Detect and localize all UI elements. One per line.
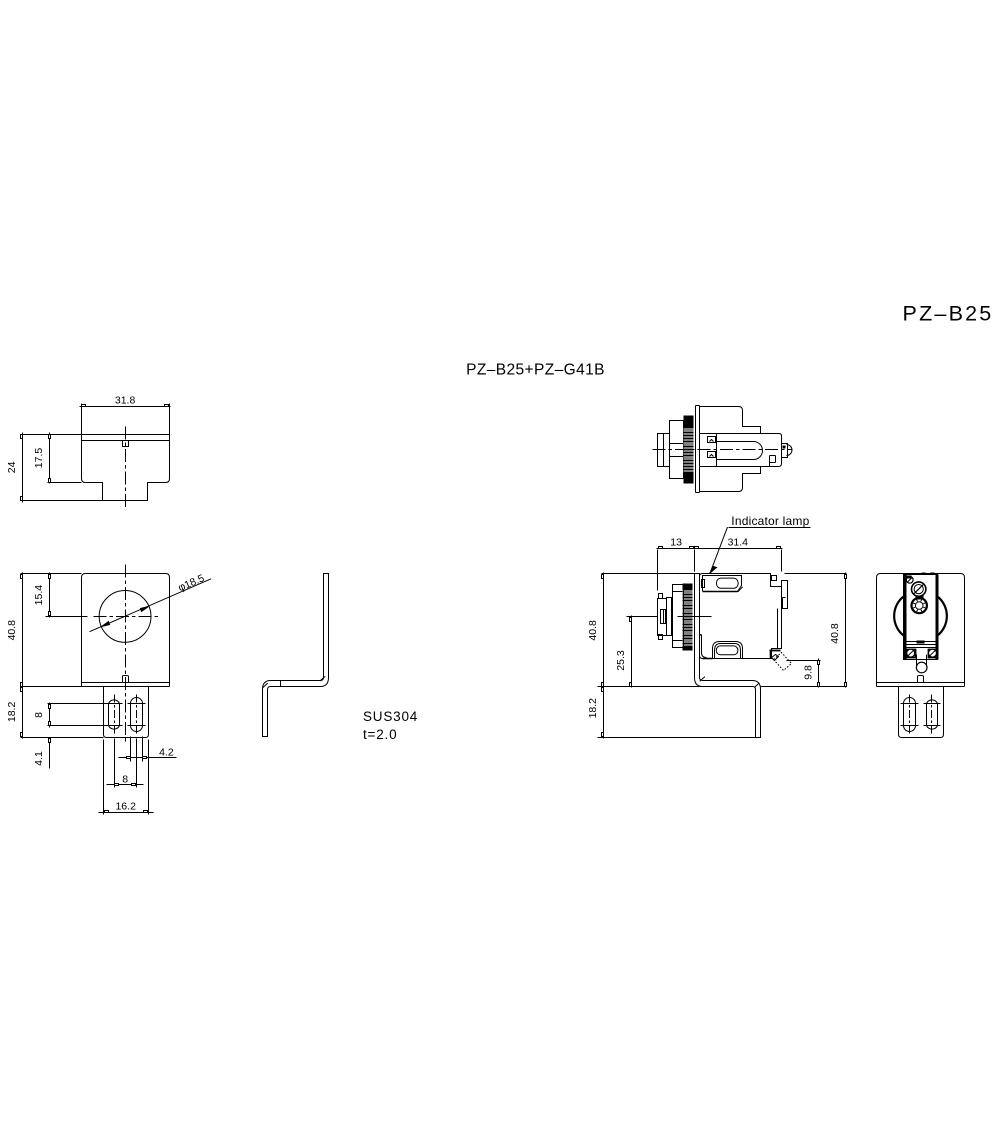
svg-text:16.2: 16.2 (115, 801, 136, 813)
svg-text:13: 13 (670, 536, 682, 548)
svg-text:15.4: 15.4 (33, 585, 45, 606)
svg-text:40.8: 40.8 (6, 620, 18, 641)
svg-text:Indicator lamp: Indicator lamp (731, 514, 809, 528)
svg-text:40.8: 40.8 (829, 623, 841, 644)
svg-text:17.5: 17.5 (33, 448, 45, 469)
svg-text:8: 8 (122, 774, 128, 786)
svg-text:t=2.0: t=2.0 (363, 727, 397, 742)
svg-text:40.8: 40.8 (587, 620, 599, 641)
svg-text:25.3: 25.3 (615, 650, 627, 671)
svg-text:8: 8 (33, 712, 45, 718)
svg-text:4.2: 4.2 (159, 746, 174, 758)
svg-text:PZ–B25: PZ–B25 (903, 302, 994, 326)
svg-text:18.2: 18.2 (6, 702, 18, 723)
svg-text:31.4: 31.4 (728, 536, 749, 548)
svg-text:9.8: 9.8 (803, 665, 815, 680)
svg-text:4.1: 4.1 (33, 751, 45, 766)
svg-text:24: 24 (6, 461, 18, 473)
svg-text:31.8: 31.8 (115, 395, 136, 407)
svg-text:PZ–B25+PZ–G41B: PZ–B25+PZ–G41B (466, 361, 605, 378)
svg-text:SUS304: SUS304 (363, 709, 418, 724)
svg-text:18.2: 18.2 (587, 698, 599, 719)
